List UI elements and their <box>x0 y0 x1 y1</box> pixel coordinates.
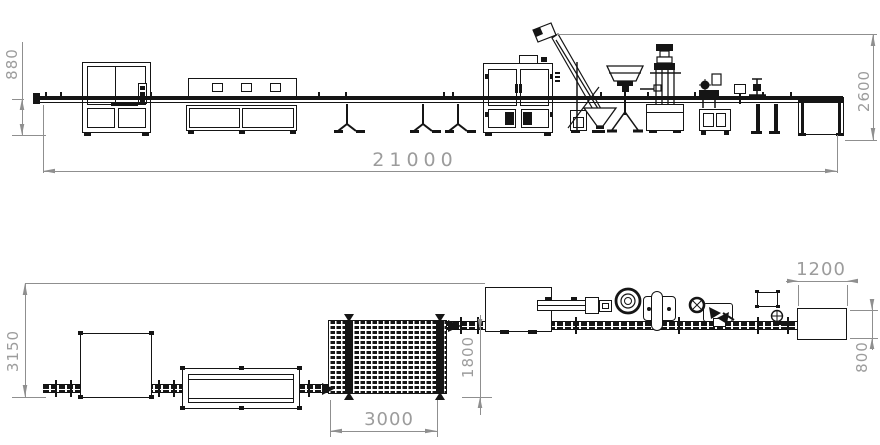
dim-1800-label: 1800 <box>458 297 478 417</box>
printer-head-plan <box>772 311 783 326</box>
dim-800-label: 800 <box>852 297 872 417</box>
dim-arrow <box>20 124 25 135</box>
dim-21000-label: 21000 <box>355 150 475 170</box>
accumulator-flow-arrows <box>322 314 461 400</box>
labeler-applicator-plan <box>709 307 734 324</box>
dim-arrow <box>478 319 483 330</box>
dim-arrow <box>23 385 28 397</box>
cap-feeder-bowl-plan <box>616 289 640 313</box>
dim-1200-label: 1200 <box>761 260 880 280</box>
dim-arrow <box>43 169 55 174</box>
dim-880-label: 880 <box>2 4 22 124</box>
dim-arrow <box>23 283 28 295</box>
dim-3150-label: 3150 <box>3 291 23 411</box>
production-line-drawing: 880 2600 21000 3150 1800 3000 1200 800 <box>0 0 880 445</box>
dim-arrow <box>478 397 483 408</box>
label-roll-plan <box>690 298 704 312</box>
plan-linework-and-arrows <box>0 0 880 445</box>
dimension-arrowheads <box>20 34 876 433</box>
dim-3000-label: 3000 <box>329 410 449 430</box>
dim-2600-label: 2600 <box>854 31 874 151</box>
dim-arrow <box>825 169 837 174</box>
